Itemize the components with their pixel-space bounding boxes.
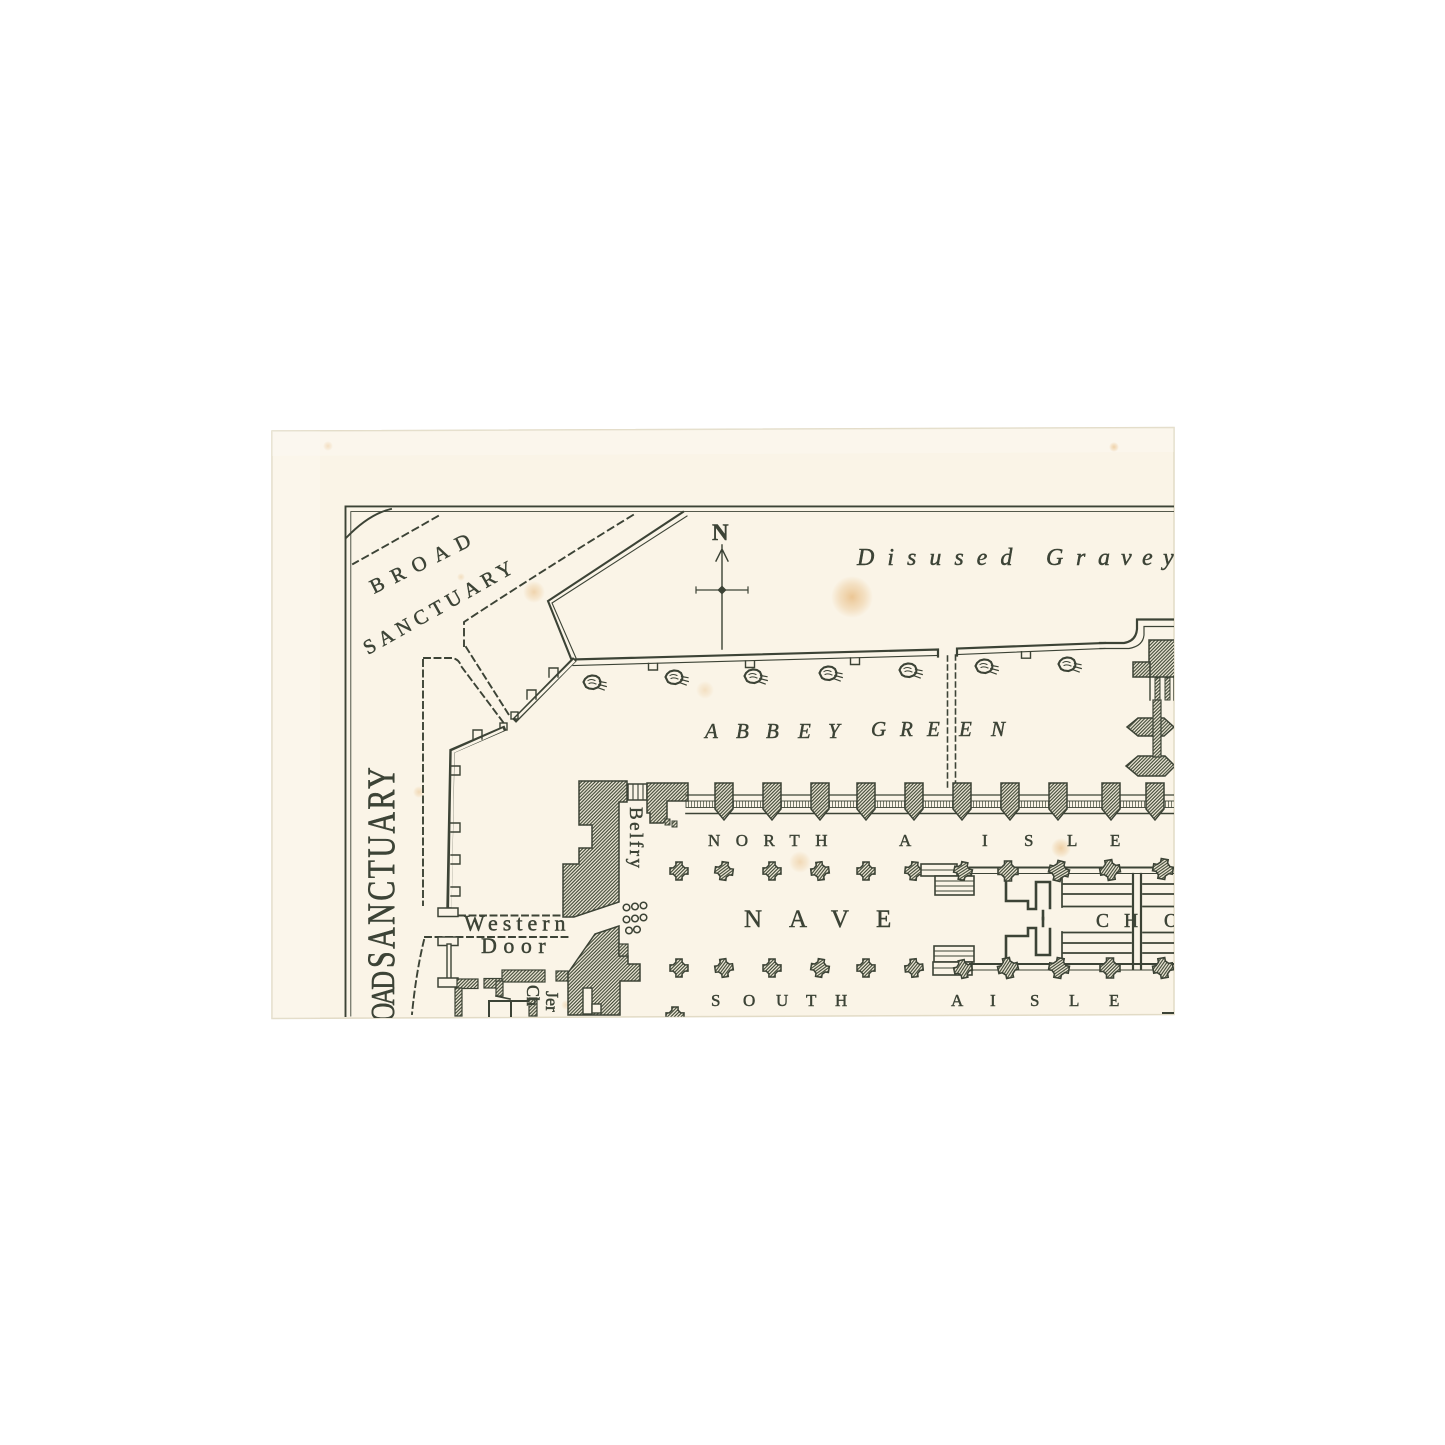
svg-text:Belfry: Belfry [625,807,646,871]
svg-text:Disused: Disused [856,545,1025,571]
svg-text:SANCTUARY: SANCTUARY [359,765,403,968]
svg-text:CHO: CHO [1096,911,1178,932]
svg-text:NORTH: NORTH [708,831,843,850]
svg-text:Ch: Ch [523,985,543,1006]
svg-text:Jer: Jer [542,991,562,1012]
svg-text:NAVE: NAVE [744,906,918,933]
svg-text:Western: Western [464,911,571,936]
svg-text:Door: Door [481,933,552,958]
svg-text:N: N [712,520,729,545]
